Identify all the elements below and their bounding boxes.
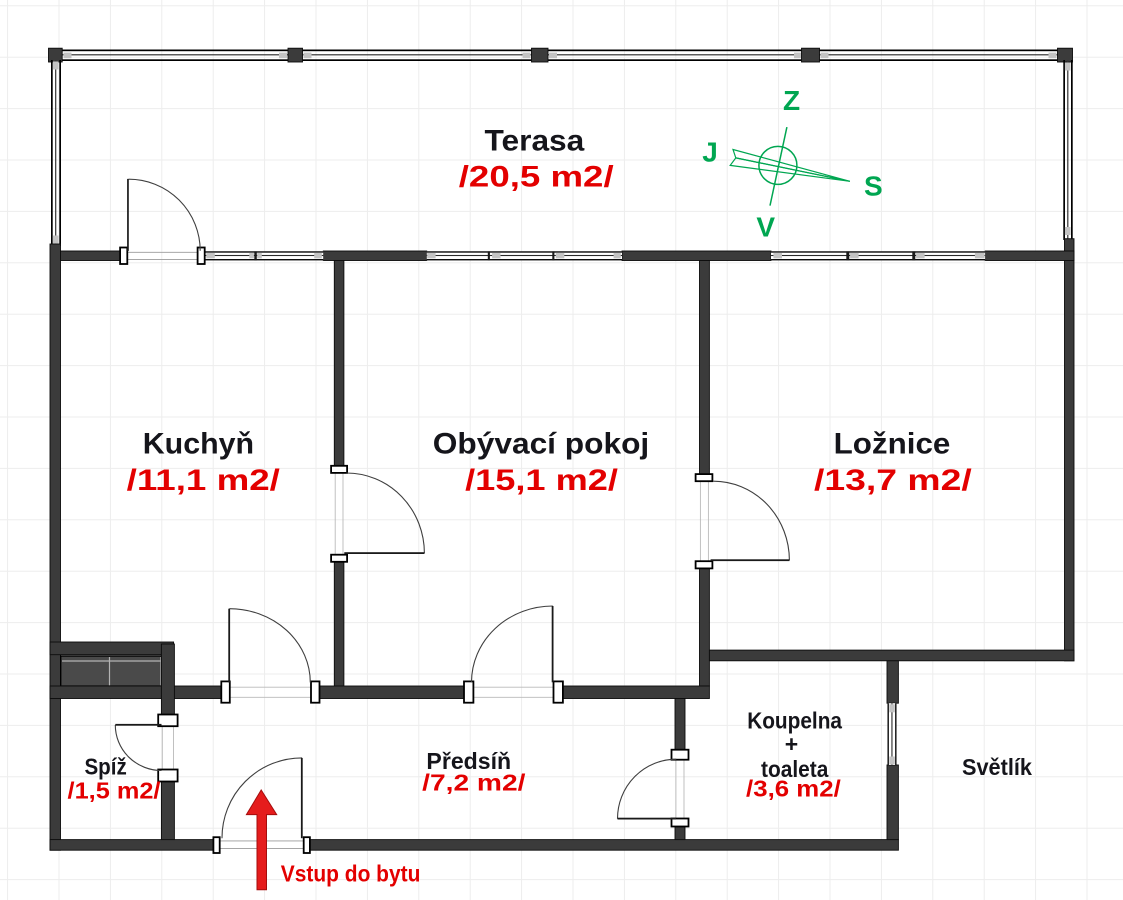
svg-text:/3,6 m2/: /3,6 m2/	[746, 776, 841, 802]
svg-text:/13,7 m2/: /13,7 m2/	[814, 464, 973, 497]
svg-text:/7,2 m2/: /7,2 m2/	[422, 770, 526, 796]
svg-text:/20,5 m2/: /20,5 m2/	[459, 160, 615, 193]
svg-text:S: S	[864, 170, 883, 201]
svg-text:Obývací pokoj: Obývací pokoj	[433, 427, 650, 460]
svg-text:/15,1 m2/: /15,1 m2/	[465, 464, 619, 497]
svg-text:Terasa: Terasa	[485, 125, 585, 158]
svg-text:V: V	[756, 212, 775, 243]
svg-text:/11,1 m2/: /11,1 m2/	[127, 464, 281, 497]
svg-text:Ložnice: Ložnice	[834, 427, 951, 460]
svg-text:Vstup do bytu: Vstup do bytu	[281, 861, 421, 887]
svg-text:Světlík: Světlík	[962, 754, 1032, 780]
svg-text:Z: Z	[783, 85, 800, 116]
svg-text:J: J	[702, 137, 718, 168]
svg-text:Kuchyň: Kuchyň	[143, 427, 254, 460]
svg-text:/1,5 m2/: /1,5 m2/	[68, 778, 162, 804]
svg-text:Spíž: Spíž	[84, 754, 126, 780]
svg-text:+: +	[785, 731, 798, 757]
svg-text:Koupelna: Koupelna	[747, 708, 842, 734]
